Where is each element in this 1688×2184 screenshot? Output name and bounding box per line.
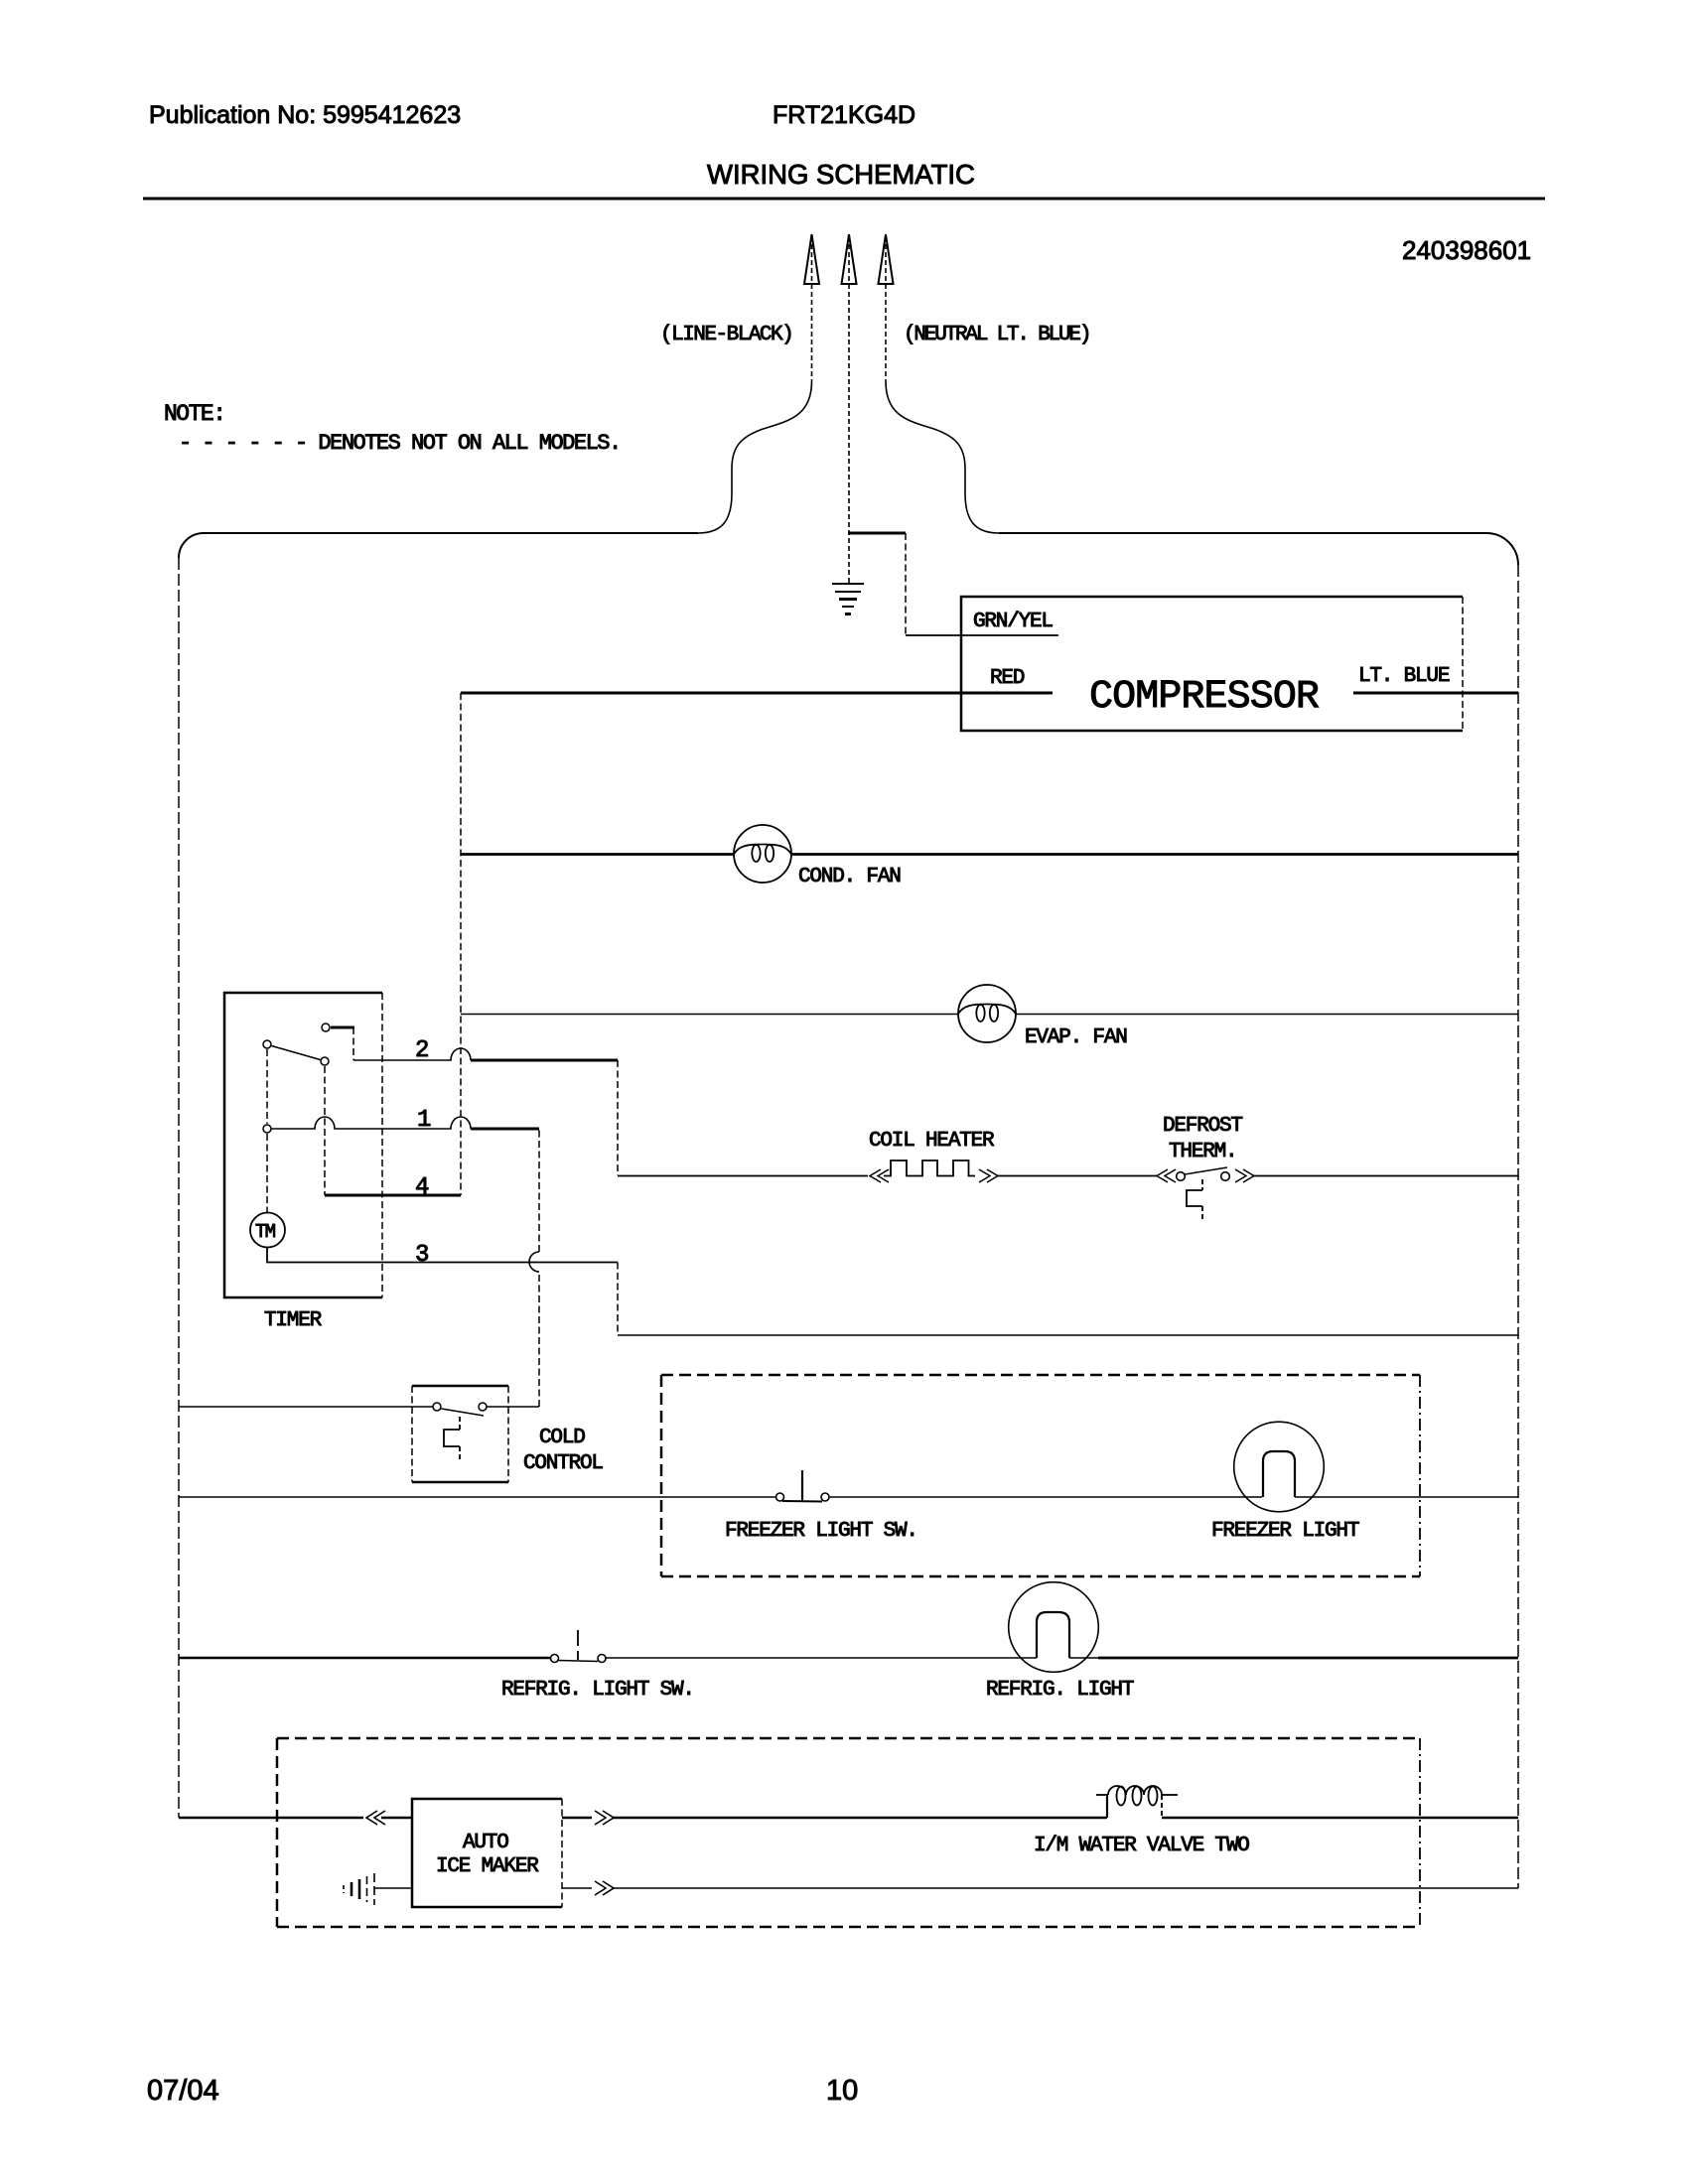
svg-text:COMPRESSOR: COMPRESSOR xyxy=(1089,675,1319,720)
svg-text:4: 4 xyxy=(415,1174,429,1201)
svg-text:NOTE:: NOTE: xyxy=(164,401,225,427)
svg-text:FREEZER LIGHT SW.: FREEZER LIGHT SW. xyxy=(725,1520,917,1543)
svg-text:WIRING SCHEMATIC: WIRING SCHEMATIC xyxy=(707,159,975,190)
svg-text:REFRIG. LIGHT: REFRIG. LIGHT xyxy=(986,1679,1134,1702)
svg-text:REFRIG. LIGHT SW.: REFRIG. LIGHT SW. xyxy=(501,1679,694,1702)
svg-text:COND. FAN: COND. FAN xyxy=(798,866,901,888)
svg-text:ICE MAKER: ICE MAKER xyxy=(436,1855,539,1878)
svg-text:COLD: COLD xyxy=(539,1427,585,1449)
svg-text:EVAP. FAN: EVAP. FAN xyxy=(1025,1026,1127,1049)
svg-text:- - - - - - DENOTES NOT ON ALL: - - - - - - DENOTES NOT ON ALL MODELS. xyxy=(179,431,621,456)
svg-text:LT. BLUE: LT. BLUE xyxy=(1358,665,1450,688)
svg-text:RED: RED xyxy=(990,667,1025,690)
svg-text:GRN/YEL: GRN/YEL xyxy=(973,611,1053,633)
svg-text:Publication No: 5995412623: Publication No: 5995412623 xyxy=(149,101,461,129)
svg-text:FRT21KG4D: FRT21KG4D xyxy=(773,101,915,129)
svg-text:COIL HEATER: COIL HEATER xyxy=(869,1130,995,1153)
svg-text:240398601: 240398601 xyxy=(1402,235,1531,265)
svg-text:(NEUTRAL LT. BLUE): (NEUTRAL LT. BLUE) xyxy=(904,324,1089,346)
svg-text:AUTO: AUTO xyxy=(463,1832,508,1854)
svg-text:I/M WATER VALVE TWO: I/M WATER VALVE TWO xyxy=(1034,1835,1249,1857)
svg-text:TIMER: TIMER xyxy=(264,1309,323,1332)
svg-text:07/04: 07/04 xyxy=(147,2075,219,2107)
svg-text:DEFROST: DEFROST xyxy=(1163,1115,1242,1138)
svg-text:1: 1 xyxy=(417,1107,431,1134)
svg-text:TM: TM xyxy=(255,1221,276,1243)
svg-text:CONTROL: CONTROL xyxy=(523,1452,603,1475)
svg-text:(LINE-BLACK): (LINE-BLACK) xyxy=(660,324,792,346)
svg-text:3: 3 xyxy=(415,1242,429,1269)
svg-text:THERM.: THERM. xyxy=(1169,1141,1236,1163)
svg-text:FREEZER LIGHT: FREEZER LIGHT xyxy=(1211,1520,1359,1543)
svg-text:10: 10 xyxy=(826,2075,858,2107)
